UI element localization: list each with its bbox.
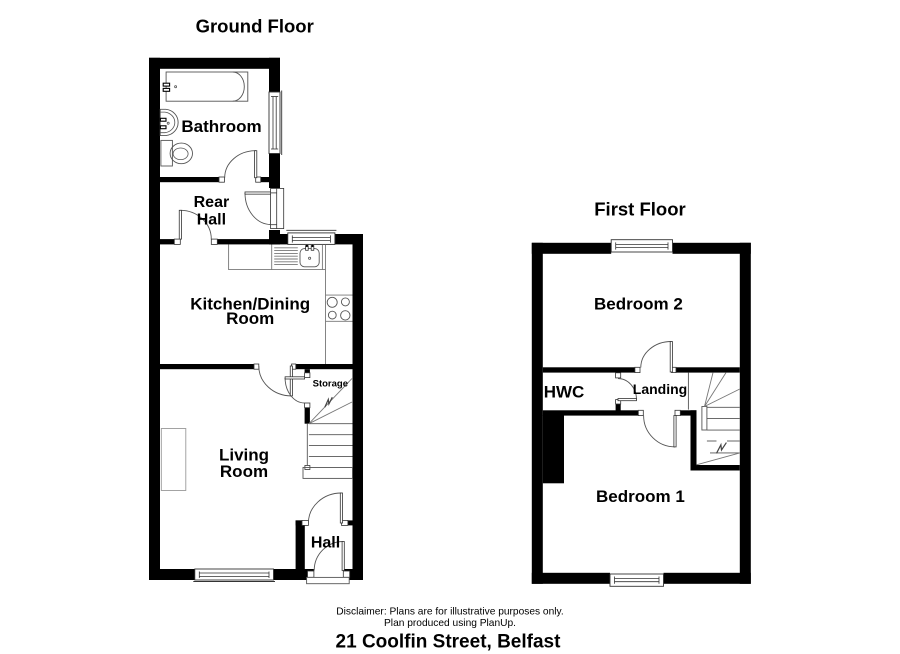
svg-text:Hall: Hall — [311, 535, 340, 552]
svg-text:Bedroom 2: Bedroom 2 — [594, 295, 683, 314]
svg-text:Disclaimer: Plans are for illu: Disclaimer: Plans are for illustrative p… — [336, 607, 563, 618]
svg-text:Rear: Rear — [194, 194, 230, 211]
svg-text:21 Coolfin Street, Belfast: 21 Coolfin Street, Belfast — [336, 632, 562, 653]
svg-text:Bathroom: Bathroom — [181, 117, 261, 136]
svg-text:Hall: Hall — [197, 211, 226, 228]
svg-text:Bedroom 1: Bedroom 1 — [596, 487, 685, 506]
svg-text:HWC: HWC — [544, 382, 585, 401]
svg-text:Ground Floor: Ground Floor — [196, 16, 314, 37]
svg-text:Room: Room — [220, 462, 268, 481]
svg-text:Plan produced using PlanUp.: Plan produced using PlanUp. — [384, 618, 516, 629]
svg-text:Landing: Landing — [633, 381, 687, 397]
svg-text:Storage: Storage — [313, 379, 348, 390]
svg-text:First Floor: First Floor — [594, 199, 685, 220]
svg-text:Room: Room — [226, 309, 274, 328]
